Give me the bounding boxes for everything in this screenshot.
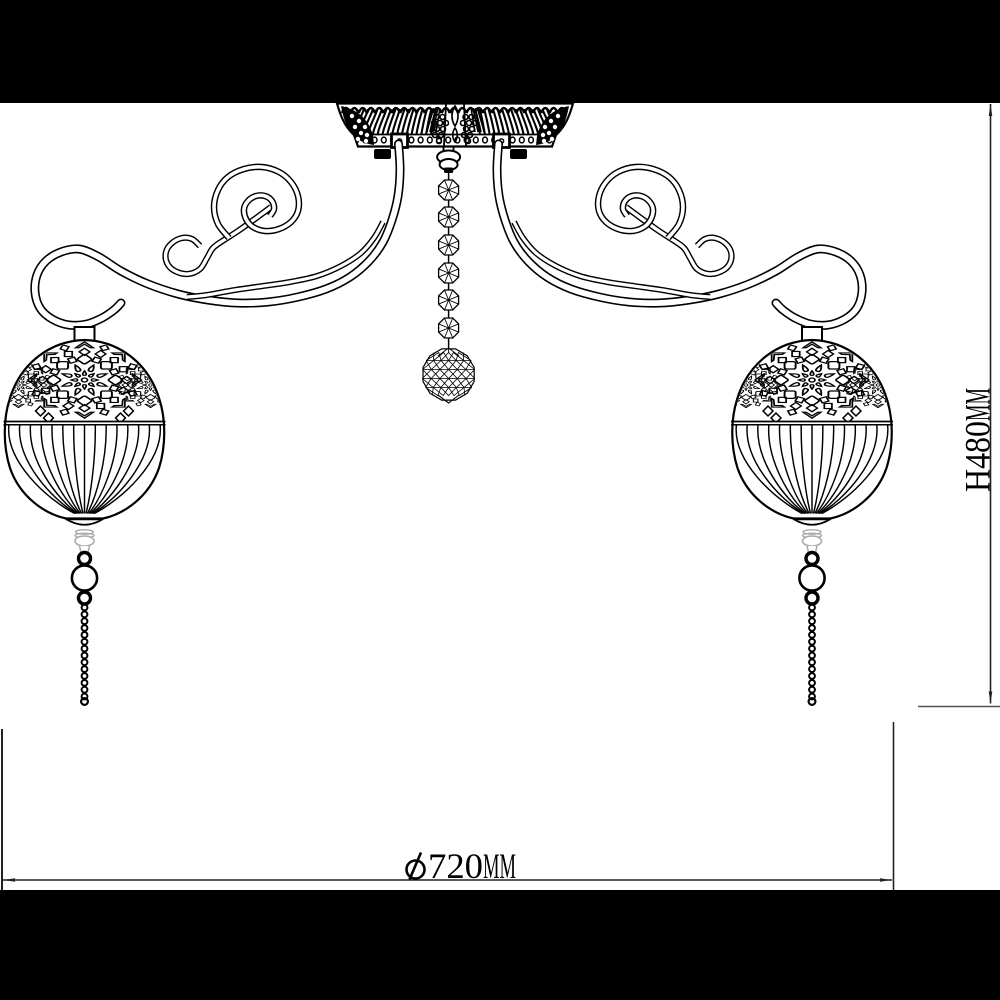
svg-text:H480MM: H480MM [958, 388, 998, 492]
svg-text:720MM: 720MM [428, 846, 516, 886]
